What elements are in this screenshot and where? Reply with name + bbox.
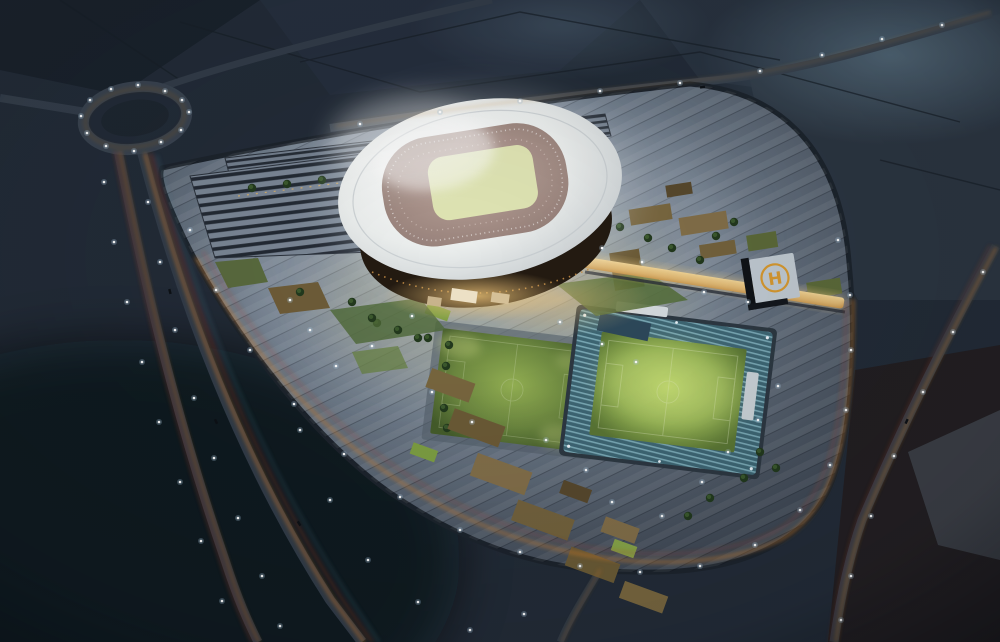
vignette-overlay	[0, 0, 1000, 642]
scene-svg: H	[0, 0, 1000, 642]
aerial-render: H	[0, 0, 1000, 642]
